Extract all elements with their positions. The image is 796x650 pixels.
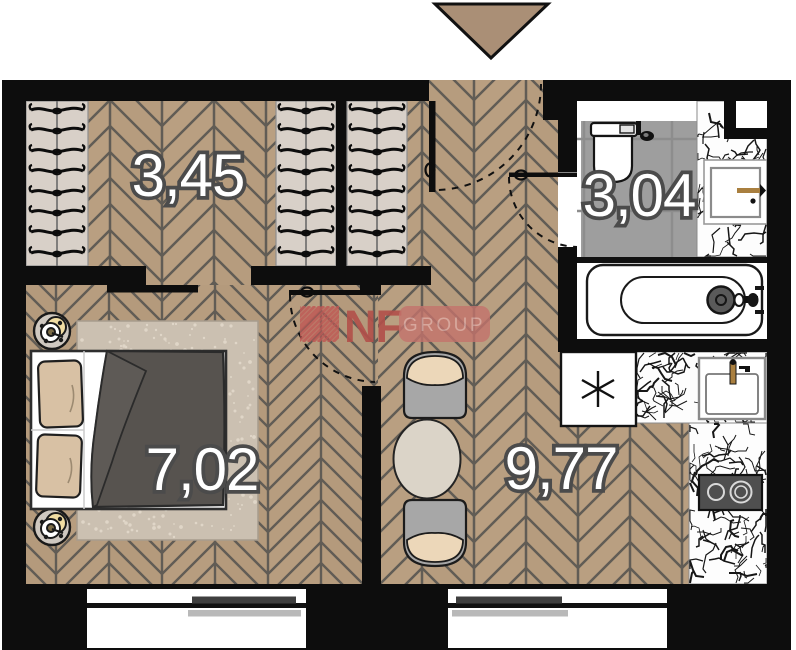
svg-text:3,45: 3,45 xyxy=(132,142,245,209)
svg-text:9,77: 9,77 xyxy=(505,435,618,502)
svg-text:NF: NF xyxy=(344,301,402,352)
svg-text:7,02: 7,02 xyxy=(146,436,259,503)
svg-text:GROUP: GROUP xyxy=(403,315,485,336)
svg-text:3,04: 3,04 xyxy=(583,162,696,229)
